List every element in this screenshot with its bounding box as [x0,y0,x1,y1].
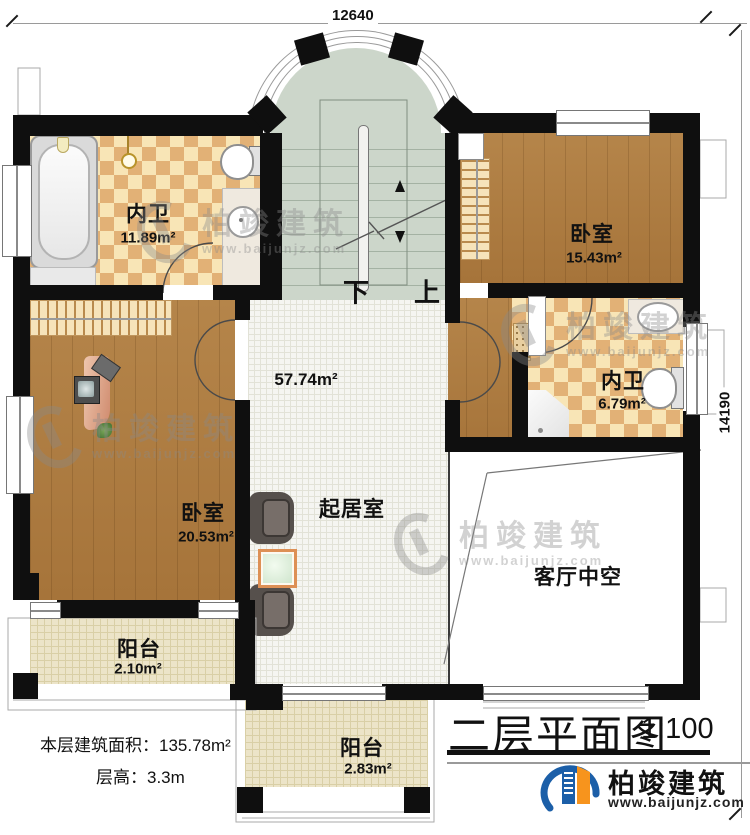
bathtub-faucet-icon [57,137,69,153]
balcony-bottom-floor [245,700,428,787]
room-label-bath-right: 内卫 [601,365,645,395]
wall [445,437,700,452]
floor-height-label: 层高： [96,768,147,787]
floor-height-value: 3.3m [147,768,185,787]
wall [488,283,700,298]
plant-icon [97,423,112,438]
window [282,686,386,701]
sink-drain-icon [239,218,243,222]
room-label-bedroom-right: 卧室 [570,218,614,248]
wall [13,285,163,300]
armchair [249,584,294,636]
pendant-lamp-icon [121,153,137,169]
room-label-living: 起居室 [319,493,385,523]
stair-rail [358,125,369,292]
wall [512,352,528,440]
bedroom-left-floor [30,300,235,600]
window [2,165,32,257]
room-area-bath-right: 6.79m² [598,396,646,413]
window [198,602,239,619]
floor-area-value: 135.78m² [159,736,231,755]
window [483,686,649,701]
floor-area-note: 本层建筑面积：135.78m² [40,731,231,756]
floor-plan: 内卫 11.89m² 卧室 15.43m² 内卫 6.79m² 卧室 20.53… [0,0,750,835]
floor-height-note: 层高：3.3m [96,763,185,788]
sink [637,302,679,332]
balcony-pillar [404,787,430,813]
door-leaf [458,133,484,160]
coffee-table [258,549,297,588]
wardrobe [30,300,172,336]
room-area-living: 57.74m² [274,370,337,390]
room-area-bedroom-left: 20.53m² [178,529,234,546]
room-label-balcony-left: 阳台 [117,633,161,663]
shower-drain-icon [538,428,543,433]
dimension-right-value: 14190 [716,388,733,438]
room-label-void: 客厅中空 [534,561,622,591]
dimension-tick [700,11,713,24]
balcony-pillar [237,787,263,813]
floor-area-label: 本层建筑面积： [40,736,159,755]
dimension-line-top [13,23,747,24]
room-label-bedroom-left: 卧室 [181,497,225,527]
brand-url: www.baijunjz.com [608,794,745,810]
dimension-line-right [741,30,742,818]
toilet [641,368,677,409]
pendant-lamp-icon [127,133,129,155]
bathtub-basin [38,144,90,260]
room-label-balcony-bottom: 阳台 [340,732,384,762]
room-area-balcony-bottom: 2.83m² [344,761,392,778]
wall [382,684,483,700]
stair-up-label: 上 [414,273,440,310]
room-area-balcony-left: 2.10m² [114,661,162,678]
wall [445,133,460,323]
window [556,110,650,136]
wall [235,298,250,320]
wall [260,133,282,300]
room-area-bath-top: 11.89m² [120,230,175,247]
brand-logo-icon [540,758,604,818]
dimension-tick [729,24,742,37]
room-area-bedroom-right: 15.43m² [566,250,622,267]
dimension-top-value: 12640 [328,7,378,24]
shower-slab [30,267,96,287]
toilet [220,144,254,180]
wall [13,115,263,136]
door-leaf [528,296,546,356]
balcony-pillar [13,673,38,699]
window [686,323,708,415]
wall [235,400,250,600]
wall [13,573,39,600]
wall [57,600,200,618]
sink [227,206,259,238]
room-label-bath-top: 内卫 [126,198,170,228]
window [6,396,34,494]
dimension-tick [6,15,19,28]
armchair [249,492,294,544]
wall [683,411,700,698]
monitor-icon [78,381,94,397]
wall [230,684,282,700]
wall [452,113,562,133]
stair-down-label: 下 [343,273,369,310]
plan-scale: 1:100 [641,713,714,746]
wall [645,684,700,700]
wall [13,253,30,398]
window [30,602,61,619]
wardrobe [461,158,490,260]
title-underline [447,750,710,755]
